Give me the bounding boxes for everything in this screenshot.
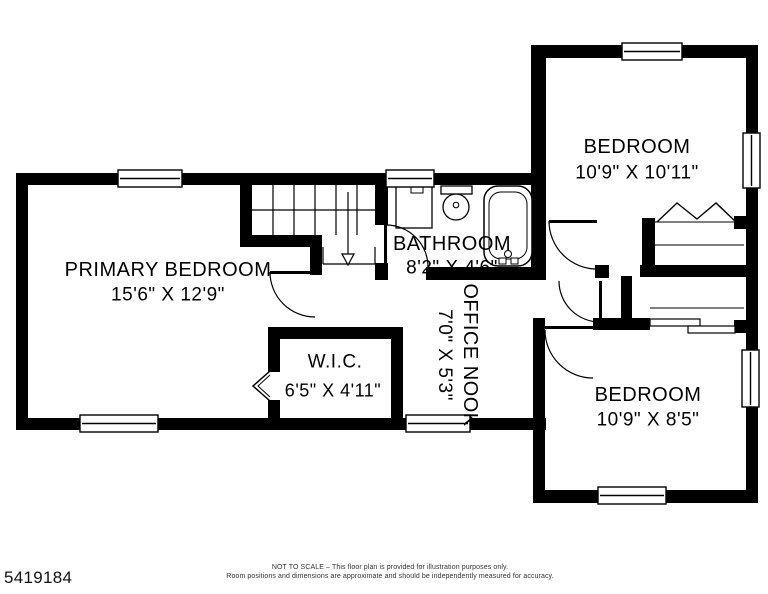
closet-upper-bifold-doors <box>655 203 744 245</box>
wall-linen-right <box>621 276 632 318</box>
wic-bifold-door <box>253 371 270 401</box>
wall-hall-corner-block <box>595 265 609 278</box>
bedroom2-label: BEDROOM <box>595 382 702 408</box>
wall-wic-right <box>391 327 403 430</box>
wall-closet-upper-left <box>642 218 655 265</box>
toilet <box>441 186 472 220</box>
wall-top-left-section <box>16 173 546 185</box>
disclaimer-line1: NOT TO SCALE – This floor plan is provid… <box>272 564 508 571</box>
office-nook-dims: 7'0" X 5'3" <box>431 283 457 426</box>
primary-bedroom-door <box>270 272 315 317</box>
linen-closet-door <box>559 281 601 322</box>
wic-dims: 6'5" X 4'11" <box>285 379 381 402</box>
wic-label: W.I.C. <box>308 351 363 376</box>
wall-left-outer <box>16 173 28 430</box>
bedroom1-door <box>549 221 597 269</box>
wall-bedroom2-left <box>533 318 545 490</box>
closet-lower-sliding-doors <box>650 308 744 333</box>
bedroom1-dims: 10'9" X 10'11" <box>575 162 699 187</box>
wall-wic-left-upper <box>268 339 280 372</box>
wall-closet-upper-post-right <box>734 216 748 229</box>
bedroom2-door <box>545 328 593 379</box>
wall-right-outer <box>746 45 758 503</box>
primary-bedroom-dims: 15'6" X 12'9" <box>111 284 225 309</box>
window-primary-bottom <box>80 415 158 432</box>
bathroom-dims: 8'2" X 4'6" <box>406 257 498 282</box>
wall-wic-top <box>268 327 403 339</box>
wall-closet-lower-post-right <box>734 320 748 333</box>
wall-closet-divider <box>640 265 746 277</box>
bedroom2-dims: 10'9" X 8'5" <box>597 409 700 434</box>
vanity-sink <box>396 186 432 228</box>
floor-plan-page: PRIMARY BEDROOM 15'6" X 12'9" BATHROOM 8… <box>0 0 768 594</box>
bathroom-label: BATHROOM <box>393 231 511 257</box>
wall-stair-bottom <box>240 235 322 247</box>
stair-down-arrow <box>342 192 354 265</box>
window-bathroom-top <box>386 170 434 187</box>
wall-bath-left-upper <box>375 185 388 225</box>
wall-wic-left-lower <box>268 400 280 430</box>
window-bedroom2-bottom <box>598 487 666 504</box>
window-primary-top <box>118 170 182 187</box>
bedroom1-label: BEDROOM <box>584 134 691 160</box>
office-nook-label: OFFICE NOOK <box>457 283 483 426</box>
window-bedroom1-top <box>622 43 682 60</box>
wall-bath-left-corner <box>375 263 388 280</box>
wall-hall-stub <box>310 235 322 275</box>
disclaimer-line2: Room positions and dimensions are approx… <box>226 573 553 580</box>
listing-id: 5419184 <box>4 568 72 588</box>
primary-bedroom-label: PRIMARY BEDROOM <box>65 257 272 283</box>
window-bedroom1-right <box>743 133 760 188</box>
wall-bedrooms-divider-left <box>531 45 546 277</box>
window-bedroom2-right <box>742 350 759 407</box>
office-nook-label-block: OFFICE NOOK 7'0" X 5'3" <box>431 283 483 426</box>
